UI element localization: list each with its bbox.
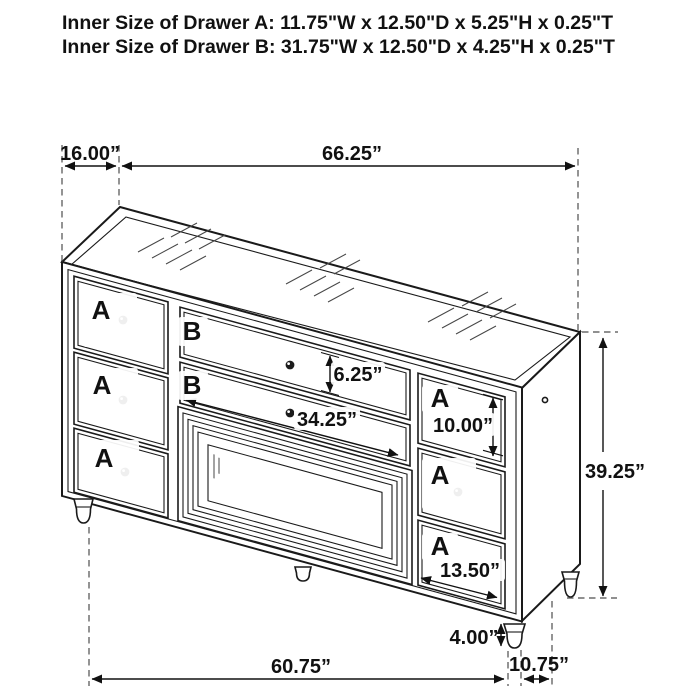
- dim-label-a-width: 13.50”: [440, 560, 500, 582]
- dim-label-top-width: 66.25”: [322, 143, 382, 165]
- dim-label-base-width: 60.75”: [271, 656, 331, 678]
- dim-label-top-depth: 16.00”: [60, 143, 120, 165]
- label-drawer-a-left-2: A: [93, 370, 112, 400]
- dim-label-b-height: 6.25”: [334, 364, 383, 386]
- dim-label-base-depth: 10.75”: [509, 654, 569, 676]
- dim-label-overall-height: 39.25”: [585, 461, 645, 483]
- label-drawer-a-right-2: A: [431, 460, 450, 490]
- label-drawer-a-left-3: A: [95, 443, 114, 473]
- label-drawer-a-right-3: A: [431, 531, 450, 561]
- header-drawer-b-size: Inner Size of Drawer B: 31.75"W x 12.50"…: [62, 36, 615, 58]
- dim-label-leg-height: 4.00”: [450, 627, 499, 649]
- side-panel-peg-hole: [542, 397, 547, 402]
- leg-front-center: [295, 567, 311, 581]
- leg-front-right: [504, 624, 525, 648]
- header-drawer-a-size: Inner Size of Drawer A: 11.75"W x 12.50"…: [62, 12, 613, 34]
- knob-b-1: [286, 361, 295, 370]
- label-drawer-a-left-1: A: [92, 295, 111, 325]
- label-drawer-a-right-1: A: [431, 383, 450, 413]
- dim-label-a-height: 10.00”: [433, 415, 493, 437]
- knob-b-2: [286, 409, 295, 418]
- dim-label-b-width: 34.25”: [297, 409, 357, 431]
- dresser-dimension-diagram: Inner Size of Drawer A: 11.75"W x 12.50"…: [0, 0, 700, 700]
- diagram-canvas: Inner Size of Drawer A: 11.75"W x 12.50"…: [0, 0, 700, 700]
- leg-back-right: [562, 572, 579, 597]
- label-drawer-b-1: B: [183, 316, 202, 346]
- label-drawer-b-2: B: [183, 370, 202, 400]
- leg-front-left: [74, 499, 93, 523]
